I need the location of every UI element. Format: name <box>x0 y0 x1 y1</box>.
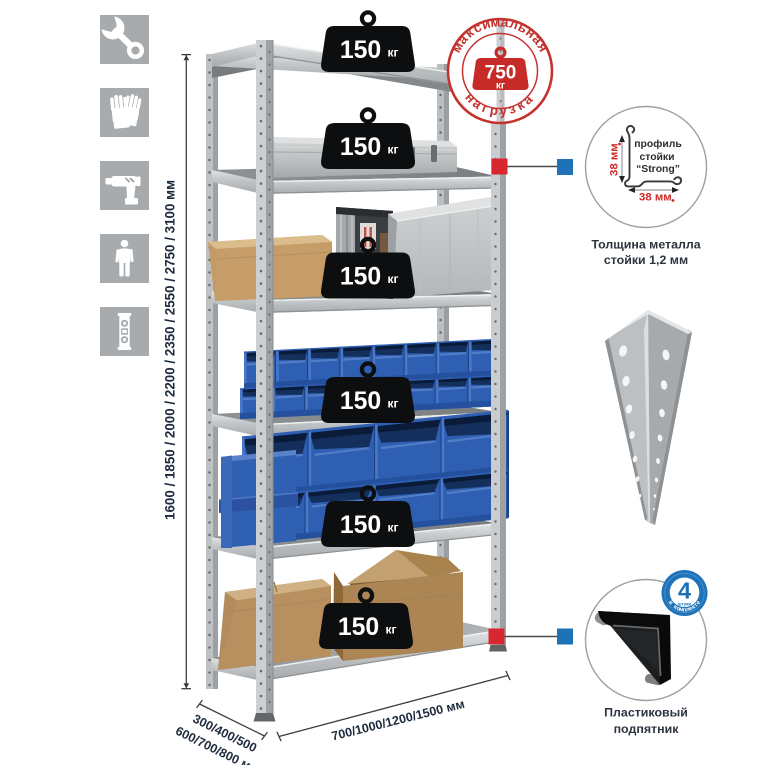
svg-text:стойки 1,2 мм: стойки 1,2 мм <box>604 253 688 267</box>
svg-text:Толщина металла: Толщина металла <box>591 238 700 252</box>
svg-text:профиль: профиль <box>634 138 681 150</box>
svg-text:“Strong”: “Strong” <box>636 164 680 175</box>
svg-text:38 мм: 38 мм <box>639 192 672 204</box>
svg-text:Пластиковый: Пластиковый <box>604 706 688 720</box>
svg-text:кг: кг <box>496 81 505 92</box>
svg-text:38 мм: 38 мм <box>609 143 621 176</box>
svg-text:м: м <box>490 14 501 30</box>
svg-text:4: 4 <box>678 578 691 604</box>
svg-text:подпятник: подпятник <box>614 722 680 736</box>
svg-text:стойки: стойки <box>639 152 674 163</box>
svg-text:1600 / 1850 / 2000 / 2200 / 23: 1600 / 1850 / 2000 / 2200 / 2350 / 2550 … <box>163 180 178 520</box>
